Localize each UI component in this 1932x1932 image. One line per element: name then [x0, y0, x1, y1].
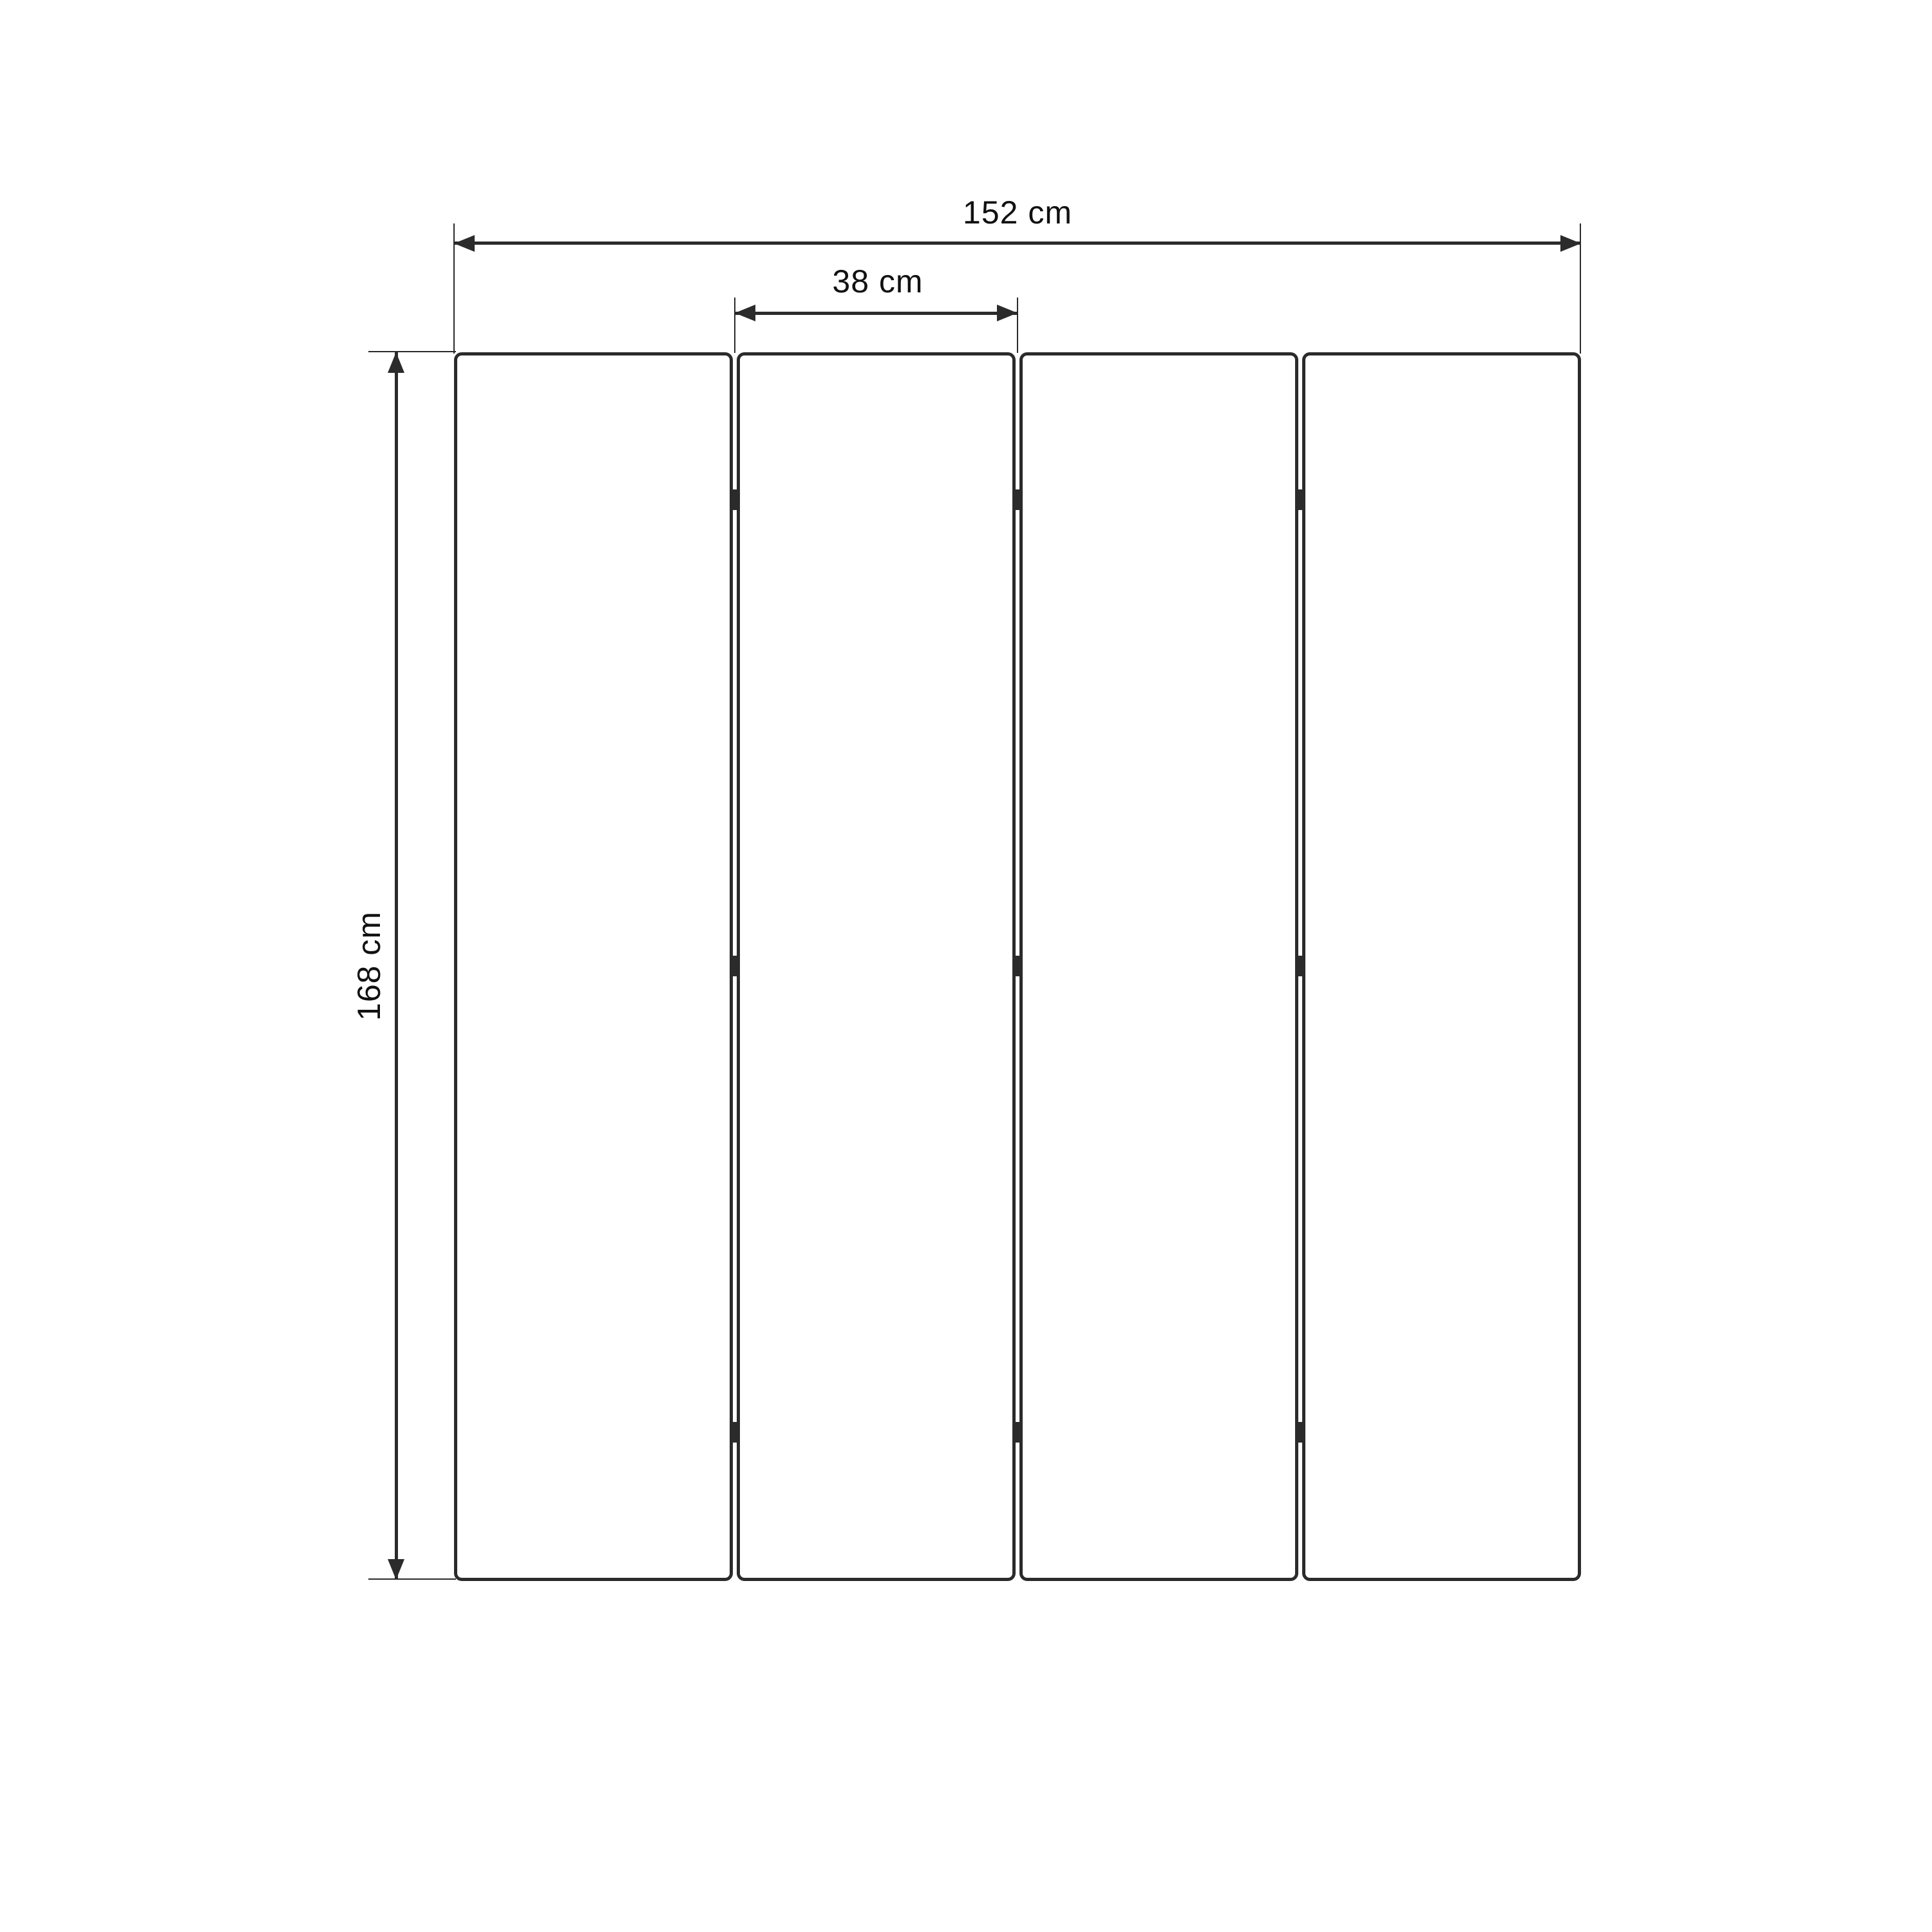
panel-2: [737, 352, 1016, 1581]
hinge-mark: [1296, 1422, 1305, 1443]
arrowhead-left-icon: [735, 305, 755, 321]
arrowhead-down-icon: [388, 1559, 404, 1580]
panel-width-dimension-line: [735, 312, 1018, 315]
arrowhead-right-icon: [1560, 235, 1581, 252]
arrowhead-up-icon: [388, 352, 404, 373]
height-dimension-label: 168 cm: [351, 837, 387, 1095]
hinge-mark: [730, 956, 739, 976]
hinge-mark: [1013, 489, 1022, 510]
arrowhead-left-icon: [454, 235, 475, 252]
panel-1: [454, 352, 733, 1581]
hinge-mark: [730, 1422, 739, 1443]
extension-line-top: [368, 351, 456, 352]
height-dimension-line: [395, 352, 398, 1580]
panel-width-dimension-label: 38 cm: [749, 263, 1007, 299]
hinge-mark: [1296, 956, 1305, 976]
hinge-mark: [1296, 489, 1305, 510]
hinge-mark: [1013, 1422, 1022, 1443]
hinge-mark: [1013, 956, 1022, 976]
hinge-mark: [730, 489, 739, 510]
total-width-dimension-label: 152 cm: [889, 194, 1146, 231]
arrowhead-right-icon: [997, 305, 1018, 321]
dimension-diagram: 152 cm 38 cm 168 cm: [0, 0, 1932, 1932]
total-width-dimension-line: [454, 241, 1581, 245]
extension-line-bottom: [368, 1578, 456, 1580]
panel-4: [1302, 352, 1581, 1581]
panel-3: [1019, 352, 1298, 1581]
